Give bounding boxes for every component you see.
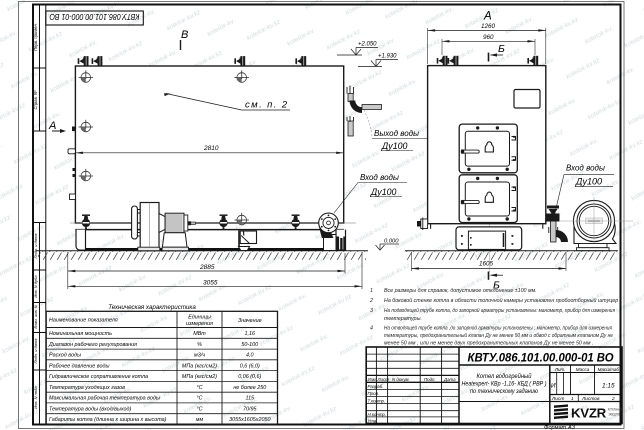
svg-text:0,06 (0,6): 0,06 (0,6) bbox=[238, 374, 261, 380]
svg-text:Наименование показателя: Наименование показателя bbox=[49, 318, 118, 324]
svg-text:Гидравлическое сопративление к: Гидравлическое сопративление котла bbox=[49, 374, 148, 380]
svg-text:Лист: Лист bbox=[551, 396, 564, 402]
svg-text:960: 960 bbox=[483, 34, 494, 41]
svg-text:KVZR: KVZR bbox=[571, 406, 607, 421]
svg-text:2: 2 bbox=[611, 396, 615, 402]
svg-text:0,6 (6,0): 0,6 (6,0) bbox=[240, 363, 260, 369]
svg-text:Ду100: Ду100 bbox=[370, 187, 396, 197]
svg-text:Техническая характеристика: Техническая характеристика bbox=[108, 304, 196, 311]
svg-text:КОТЕЛЬНЫЙ: КОТЕЛЬНЫЙ bbox=[608, 408, 622, 412]
svg-text:Справ. Nº: Справ. Nº bbox=[33, 90, 38, 110]
svg-text:2: 2 bbox=[369, 298, 373, 304]
svg-text:МПа (кгс/см2): МПа (кгс/см2) bbox=[182, 363, 217, 369]
svg-text:Вход воды: Вход воды bbox=[360, 173, 399, 182]
svg-text:Инв. N дубл.: Инв. N дубл. bbox=[33, 274, 38, 297]
svg-text:Температура уходящих газов: Температура уходящих газов bbox=[49, 385, 125, 391]
svg-text:1: 1 bbox=[370, 288, 373, 294]
svg-text:Б: Б bbox=[498, 43, 505, 55]
svg-text:N докум.: N докум. bbox=[392, 377, 410, 382]
svg-text:4,0: 4,0 bbox=[246, 353, 254, 359]
svg-text:Подп. и дата: Подп. и дата bbox=[33, 338, 38, 364]
svg-text:3: 3 bbox=[370, 308, 373, 314]
svg-text:Габариты котла (длинна х ширин: Габариты котла (длинна х ширина х высота… bbox=[49, 417, 167, 423]
svg-text:+1.930: +1.930 bbox=[378, 54, 397, 60]
svg-text:Взам. инв. N: Взам. инв. N bbox=[33, 305, 38, 328]
svg-text:мм: мм bbox=[196, 417, 204, 423]
svg-text:50-100: 50-100 bbox=[241, 342, 258, 348]
svg-text:4: 4 bbox=[370, 326, 373, 332]
svg-text:2810: 2810 bbox=[203, 145, 219, 152]
svg-text:115: 115 bbox=[246, 396, 256, 402]
svg-text:ЗАВОД РЗП: ЗАВОД РЗП bbox=[609, 413, 621, 417]
svg-text:3055х1605х2050: 3055х1605х2050 bbox=[229, 417, 270, 423]
svg-text:Температура воды (вход/выход): Температура воды (вход/выход) bbox=[49, 406, 132, 412]
svg-text:МВт: МВт bbox=[193, 331, 206, 337]
svg-text:Ду100: Ду100 bbox=[575, 177, 602, 187]
svg-text:Инв. N подл.: Инв. N подл. bbox=[33, 385, 38, 408]
svg-text:температуры, предохранительный: температуры, предохранительный клапан Ду… bbox=[384, 332, 613, 339]
svg-text:А: А bbox=[483, 11, 492, 23]
svg-text:Единицы: Единицы bbox=[188, 315, 211, 321]
svg-text:Лит.: Лит. bbox=[554, 367, 566, 372]
svg-text:Heatexpert- КВр -1,16- КБД ( Р: Heatexpert- КВр -1,16- КБД ( РВР ) bbox=[462, 382, 547, 388]
svg-text:менее 50 мм , или не менее дв: менее 50 мм , или не менее двух предохра… bbox=[384, 341, 594, 347]
svg-text:0.000: 0.000 bbox=[384, 239, 399, 245]
svg-text:КВТУ.086.101.00.000-01 ВО: КВТУ.086.101.00.000-01 ВО bbox=[50, 12, 140, 21]
svg-text:1260: 1260 bbox=[481, 23, 496, 30]
svg-text:Максимальная рабочая температу: Максимальная рабочая температура воды bbox=[49, 396, 160, 402]
svg-text:см. п. 2: см. п. 2 bbox=[245, 100, 289, 111]
svg-text:2885: 2885 bbox=[199, 264, 215, 271]
svg-text:%: % bbox=[197, 342, 202, 348]
svg-text:Лист: Лист bbox=[377, 377, 390, 382]
svg-text:На боковой стенке котла в обла: На боковой стенке котла в области топочн… bbox=[384, 297, 618, 304]
svg-text:Значение: Значение bbox=[238, 318, 262, 324]
svg-text:Перв. примен.: Перв. примен. bbox=[33, 23, 38, 51]
svg-text:КВТУ.086.101.00.000-01 ВО: КВТУ.086.101.00.000-01 ВО bbox=[468, 351, 614, 365]
svg-text:И: И bbox=[551, 383, 556, 390]
svg-text:1,16: 1,16 bbox=[245, 331, 256, 337]
svg-text:Пров.: Пров. bbox=[368, 391, 380, 396]
svg-text:В: В bbox=[181, 29, 188, 41]
svg-text:Выход воды: Выход воды bbox=[374, 129, 419, 138]
svg-text:1605: 1605 bbox=[479, 261, 494, 268]
svg-text:Рабочее давление воды: Рабочее давление воды bbox=[49, 363, 109, 369]
svg-text:1:15: 1:15 bbox=[602, 383, 615, 390]
svg-text:Диапазон рабочего регулировани: Диапазон рабочего регулирования bbox=[48, 342, 137, 348]
svg-text:по техническому заданию: по техническому заданию bbox=[470, 389, 538, 395]
svg-text:На подводящей трубе котла, д: На подводящей трубе котла, до запорной а… bbox=[384, 307, 615, 314]
svg-text:Разраб.: Разраб. bbox=[368, 384, 384, 389]
svg-text:Листов: Листов bbox=[581, 396, 600, 402]
svg-text:м3/ч: м3/ч bbox=[194, 353, 205, 359]
svg-text:1: 1 bbox=[571, 396, 574, 402]
svg-text:°С: °С bbox=[196, 385, 202, 391]
svg-text:Изм.: Изм. bbox=[368, 377, 377, 382]
svg-text:Ду100: Ду100 bbox=[381, 141, 407, 151]
svg-text:Масштаб: Масштаб bbox=[598, 367, 620, 372]
svg-text:Подп.: Подп. bbox=[424, 377, 436, 382]
svg-text:не более 250: не более 250 bbox=[233, 385, 266, 391]
svg-text:+2.050: +2.050 bbox=[358, 42, 377, 48]
svg-text:Масса: Масса bbox=[576, 367, 590, 372]
svg-text:Номинальная мощность: Номинальная мощность bbox=[49, 331, 112, 337]
svg-text:3055: 3055 bbox=[203, 279, 218, 286]
svg-text:Дата: Дата bbox=[443, 377, 456, 382]
svg-text:°С: °С bbox=[196, 406, 202, 412]
svg-text:Котел водогрейный: Котел водогрейный bbox=[477, 373, 533, 380]
svg-text:А: А bbox=[48, 120, 56, 132]
svg-text:Утв.: Утв. bbox=[368, 418, 378, 423]
svg-text:Формат: Формат bbox=[544, 425, 567, 430]
svg-text:Н.контр.: Н.контр. bbox=[368, 412, 387, 417]
svg-text:На отводящей трубе котла ,до з: На отводящей трубе котла ,до запорной ар… bbox=[384, 325, 612, 332]
svg-text:Т.контр.: Т.контр. bbox=[368, 398, 386, 403]
svg-text:Расход воды: Расход воды bbox=[49, 353, 81, 359]
svg-text:Вход воды: Вход воды bbox=[566, 164, 605, 173]
svg-text:°С: °С bbox=[196, 396, 202, 402]
svg-text:Все размеры для справок, допус: Все размеры для справок, допустимое откл… bbox=[384, 288, 537, 294]
svg-text:70/95: 70/95 bbox=[243, 406, 257, 412]
svg-text:температуры.: температуры. bbox=[384, 316, 422, 322]
svg-text:А3: А3 bbox=[567, 425, 576, 430]
svg-text:Подп. и дата: Подп. и дата bbox=[33, 233, 38, 259]
svg-text:измерения: измерения bbox=[186, 321, 213, 327]
svg-text:МПа (кгс/см2): МПа (кгс/см2) bbox=[182, 374, 217, 380]
